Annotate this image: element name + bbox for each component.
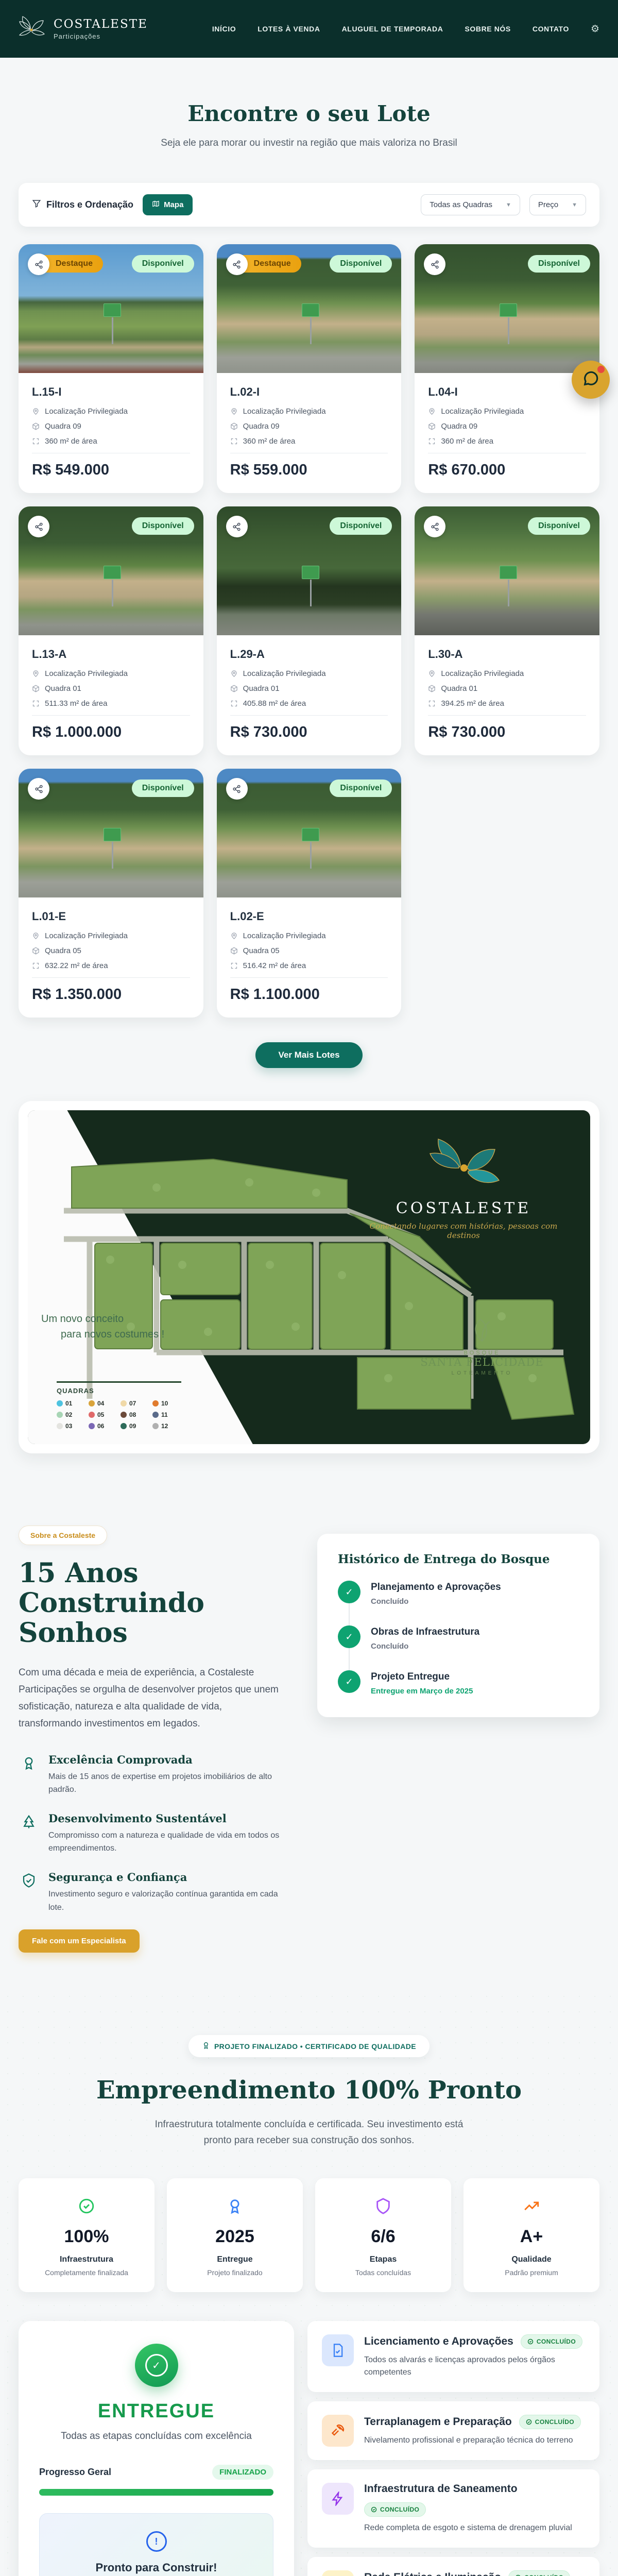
- masterplan-card: COSTALESTE Conectando lugares com histór…: [19, 1101, 599, 1453]
- lot-quadra: Quadra 09: [428, 422, 586, 431]
- legend-dot: [121, 1400, 127, 1406]
- lightning-icon: [322, 2483, 354, 2515]
- ready-subtitle: Infraestrutura totalmente concluída e ce…: [144, 2117, 474, 2148]
- legend-item: 03: [57, 1422, 85, 1430]
- progress-status-badge: FINALIZADO: [212, 2465, 273, 2480]
- filters-label: Filtros e Ordenação: [46, 199, 133, 210]
- legend-title: QUADRAS: [57, 1381, 181, 1395]
- legend-dot: [152, 1423, 159, 1429]
- legend-dot: [152, 1412, 159, 1418]
- status-badge: Disponível: [330, 517, 392, 535]
- lot-sign: [500, 566, 517, 579]
- brand-name: COSTALESTE: [54, 18, 148, 31]
- feature-item: Desenvolvimento Sustentável Compromisso …: [19, 1812, 286, 1855]
- ready-title: Empreendimento 100% Pronto: [19, 2076, 599, 2105]
- status-badge: Disponível: [528, 255, 590, 273]
- progress-bar: [39, 2489, 273, 2496]
- tree-icon: [19, 1812, 39, 1855]
- lot-card[interactable]: Disponível L.29-A Localização Privilegia…: [217, 506, 402, 755]
- lot-area: 511.33 m² de área: [32, 699, 190, 708]
- ver-mais-lotes-button[interactable]: Ver Mais Lotes: [255, 1042, 362, 1068]
- filter-bar: Filtros e Ordenação Mapa Todas as Quadra…: [19, 183, 599, 227]
- legend-dot: [121, 1412, 127, 1418]
- notification-dot: [596, 365, 606, 374]
- checklist-item: Rede Elétrica e Iluminação CONCLUÍDO Dis…: [307, 2557, 599, 2576]
- masterplan-tagline: Um novo conceito para novos costumes !: [41, 1311, 165, 1342]
- concluido-badge: CONCLUÍDO: [519, 2415, 581, 2429]
- lot-title: L.02-I: [230, 385, 388, 399]
- share-button[interactable]: [28, 778, 49, 800]
- nav-lotes-a-venda[interactable]: LOTES À VENDA: [257, 25, 320, 33]
- page-subtitle: Seja ele para morar ou investir na regiã…: [19, 138, 599, 149]
- ready-callout: ! Pronto para Construir! Sem espera, sem…: [39, 2513, 273, 2576]
- lot-photo: Disponível: [415, 244, 599, 373]
- lot-sign: [500, 303, 517, 317]
- nav-sobre-nos[interactable]: SOBRE NÓS: [465, 25, 510, 33]
- history-item: ✓ Obras de Infraestrutura Concluído: [338, 1625, 579, 1670]
- lot-area: 394.25 m² de área: [428, 699, 586, 708]
- about-title: 15 Anos Construindo Sonhos: [19, 1558, 235, 1649]
- lot-price: R$ 1.100.000: [230, 986, 388, 1003]
- info-icon: !: [146, 2531, 167, 2552]
- divider: [230, 977, 388, 978]
- hammer-icon: [322, 2415, 354, 2447]
- lot-photo: Disponível: [217, 769, 402, 897]
- ready-section: PROJETO FINALIZADO • CERTIFICADO DE QUAL…: [0, 1989, 618, 2576]
- share-button[interactable]: [226, 778, 248, 800]
- divider: [32, 453, 190, 453]
- status-badge: Disponível: [330, 779, 392, 797]
- divider: [428, 715, 586, 716]
- filters-label-group: Filtros e Ordenação: [32, 199, 133, 211]
- history-card: Histórico de Entrega do Bosque ✓ Planeja…: [317, 1534, 599, 1717]
- lot-title: L.13-A: [32, 648, 190, 661]
- legend-dot: [57, 1400, 63, 1406]
- lot-title: L.02-E: [230, 910, 388, 923]
- callout-title: Pronto para Construir!: [54, 2561, 259, 2574]
- award-icon: [19, 1753, 39, 1797]
- checklist-item: Infraestrutura de Saneamento CONCLUÍDO R…: [307, 2469, 599, 2548]
- stat-card: 2025 Entregue Projeto finalizado: [167, 2178, 303, 2292]
- lot-price: R$ 730.000: [230, 724, 388, 741]
- lot-quadra: Quadra 05: [32, 946, 190, 955]
- lot-location: Localização Privilegiada: [428, 669, 586, 678]
- checklist: Licenciamento e Aprovações CONCLUÍDO Tod…: [307, 2321, 599, 2576]
- legend-item: 08: [121, 1411, 149, 1418]
- check-circle-icon: ✓: [338, 1670, 360, 1693]
- lot-card[interactable]: Destaque Disponível L.15-I Localização P…: [19, 244, 203, 493]
- share-button[interactable]: [424, 516, 445, 537]
- lot-sign: [302, 566, 319, 579]
- lot-location: Localização Privilegiada: [230, 931, 388, 940]
- lot-location: Localização Privilegiada: [32, 931, 190, 940]
- feature-item: Segurança e Confiança Investimento segur…: [19, 1871, 286, 1914]
- fale-especialista-button[interactable]: Fale com um Especialista: [19, 1929, 140, 1953]
- document-check-icon: [322, 2334, 354, 2366]
- status-badge: Disponível: [132, 779, 194, 797]
- lot-card[interactable]: Disponível L.13-A Localização Privilegia…: [19, 506, 203, 755]
- lot-price: R$ 730.000: [428, 724, 586, 741]
- bosque-logo: BOSQUE SANTA FELICIDADE LOTEAMENTO: [405, 1316, 559, 1376]
- legend-item: 12: [152, 1422, 181, 1430]
- masterplan-brand: COSTALESTE Conectando lugares com histór…: [360, 1135, 566, 1240]
- divider: [428, 453, 586, 453]
- map-button[interactable]: Mapa: [143, 194, 193, 215]
- lot-photo: Destaque Disponível: [19, 244, 203, 373]
- chevron-down-icon: ▼: [572, 202, 577, 208]
- lightbulb-icon: [322, 2570, 354, 2576]
- quadras-legend: QUADRAS 01 04 07 10 02 05 08 11 03 06 09…: [57, 1381, 181, 1430]
- settings-gear-icon[interactable]: ⚙: [591, 23, 599, 35]
- stats-row: 100% Infraestrutura Completamente finali…: [19, 2178, 599, 2292]
- lot-card[interactable]: Destaque Disponível L.02-I Localização P…: [217, 244, 402, 493]
- lot-card[interactable]: Disponível L.02-E Localização Privilegia…: [217, 769, 402, 1018]
- legend-item: 09: [121, 1422, 149, 1430]
- bosque-name: SANTA FELICIDADE: [405, 1356, 559, 1368]
- shield-check-icon: [19, 1871, 39, 1914]
- history-item: ✓ Planejamento e Aprovações Concluído: [338, 1581, 579, 1625]
- legend-item: 05: [89, 1411, 117, 1418]
- divider: [230, 715, 388, 716]
- hero-section: Encontre o seu Lote Seja ele para morar …: [19, 58, 599, 154]
- lot-area: 632.22 m² de área: [32, 961, 190, 970]
- checklist-item: Terraplanagem e Preparação CONCLUÍDO Niv…: [307, 2401, 599, 2460]
- status-badge: Disponível: [528, 517, 590, 535]
- stat-card: 100% Infraestrutura Completamente finali…: [19, 2178, 154, 2292]
- ready-badge: PROJETO FINALIZADO • CERTIFICADO DE QUAL…: [188, 2035, 430, 2057]
- lot-card[interactable]: Disponível L.04-I Localização Privilegia…: [415, 244, 599, 493]
- legend-dot: [89, 1423, 95, 1429]
- nav-inicio[interactable]: INÍCIO: [212, 25, 236, 33]
- legend-dot: [152, 1400, 159, 1406]
- lot-photo: Disponível: [415, 506, 599, 635]
- legend-item: 02: [57, 1411, 85, 1418]
- lot-price: R$ 559.000: [230, 462, 388, 479]
- page-title: Encontre o seu Lote: [19, 101, 599, 126]
- medal-icon: [177, 2196, 293, 2216]
- lot-price: R$ 670.000: [428, 462, 586, 479]
- concluido-badge: CONCLUÍDO: [508, 2570, 570, 2576]
- lot-quadra: Quadra 05: [230, 946, 388, 955]
- quadras-select[interactable]: Todas as Quadras▼: [421, 194, 520, 215]
- legend-dot: [89, 1400, 95, 1406]
- legend-item: 06: [89, 1422, 117, 1430]
- lot-price: R$ 1.000.000: [32, 724, 190, 741]
- brand-logo[interactable]: COSTALESTE Participações: [19, 15, 148, 43]
- site-header: COSTALESTE Participações INÍCIO LOTES À …: [0, 0, 618, 58]
- lot-area: 360 m² de área: [32, 437, 190, 446]
- lot-quadra: Quadra 09: [32, 422, 190, 431]
- feature-item: Excelência Comprovada Mais de 15 anos de…: [19, 1753, 286, 1797]
- lot-sign: [104, 828, 121, 841]
- bosque-top: BOSQUE: [405, 1350, 559, 1356]
- share-button[interactable]: [226, 516, 248, 537]
- divider: [32, 977, 190, 978]
- lot-photo: Disponível: [19, 769, 203, 897]
- masterplan-brand-tagline: Conectando lugares com histórias, pessoa…: [360, 1222, 566, 1240]
- lot-sign: [104, 566, 121, 579]
- lot-price: R$ 1.350.000: [32, 986, 190, 1003]
- about-paragraph: Com uma década e meia de experiência, a …: [19, 1664, 286, 1733]
- bosque-sub: LOTEAMENTO: [405, 1370, 559, 1376]
- legend-dot: [89, 1412, 95, 1418]
- status-badge: Disponível: [132, 255, 194, 273]
- lot-location: Localização Privilegiada: [32, 669, 190, 678]
- progress-label: Progresso Geral: [39, 2467, 111, 2478]
- nav-aluguel-de-temporada[interactable]: ALUGUEL DE TEMPORADA: [342, 25, 443, 33]
- about-section: Sobre a Costaleste 15 Anos Construindo S…: [19, 1495, 599, 1989]
- history-title: Histórico de Entrega do Bosque: [338, 1552, 579, 1566]
- legend-dot: [121, 1423, 127, 1429]
- lot-sign: [302, 828, 319, 841]
- price-select[interactable]: Preço▼: [529, 194, 586, 215]
- legend-dot: [57, 1412, 63, 1418]
- share-button[interactable]: [226, 253, 248, 275]
- brand-tagline: Participações: [54, 32, 148, 40]
- lot-card[interactable]: Disponível L.30-A Localização Privilegia…: [415, 506, 599, 755]
- legend-item: 04: [89, 1400, 117, 1407]
- concluido-badge: CONCLUÍDO: [364, 2502, 426, 2517]
- chat-fab-button[interactable]: [572, 361, 610, 399]
- delivered-subtitle: Todas as etapas concluídas com excelênci…: [39, 2431, 273, 2442]
- lot-title: L.15-I: [32, 385, 190, 399]
- check-circle-icon: [29, 2196, 144, 2216]
- lot-area: 360 m² de área: [428, 437, 586, 446]
- lot-sign: [302, 303, 319, 317]
- lot-price: R$ 549.000: [32, 462, 190, 479]
- check-circle-icon: ✓: [338, 1625, 360, 1648]
- checklist-item: Licenciamento e Aprovações CONCLUÍDO Tod…: [307, 2321, 599, 2392]
- lot-area: 360 m² de área: [230, 437, 388, 446]
- delivered-title: ENTREGUE: [39, 2400, 273, 2422]
- lot-quadra: Quadra 01: [428, 684, 586, 693]
- lot-sign: [104, 303, 121, 317]
- masterplan-brand-name: COSTALESTE: [360, 1199, 566, 1217]
- chevron-down-icon: ▼: [506, 202, 511, 208]
- status-badge: Disponível: [330, 255, 392, 273]
- delivered-check-icon: ✓: [135, 2344, 178, 2387]
- lot-card[interactable]: Disponível L.01-E Localização Privilegia…: [19, 769, 203, 1018]
- nav-contato[interactable]: CONTATO: [533, 25, 569, 33]
- flower-logo-icon: [19, 15, 46, 43]
- lot-photo: Disponível: [19, 506, 203, 635]
- masterplan-flower-icon: [420, 1185, 507, 1194]
- funnel-icon: [32, 199, 41, 211]
- lots-grid: Destaque Disponível L.15-I Localização P…: [19, 244, 599, 1018]
- trending-up-icon: [474, 2196, 589, 2216]
- divider: [230, 453, 388, 453]
- stat-card: A+ Qualidade Padrão premium: [463, 2178, 599, 2292]
- about-badge: Sobre a Costaleste: [19, 1526, 107, 1545]
- masterplan-panel: COSTALESTE Conectando lugares com histór…: [28, 1110, 590, 1444]
- lot-quadra: Quadra 09: [230, 422, 388, 431]
- medal-icon: [202, 2041, 210, 2051]
- divider: [32, 715, 190, 716]
- lot-quadra: Quadra 01: [32, 684, 190, 693]
- lot-area: 405.88 m² de área: [230, 699, 388, 708]
- main-nav: INÍCIO LOTES À VENDA ALUGUEL DE TEMPORAD…: [212, 23, 599, 35]
- shield-icon: [325, 2196, 441, 2216]
- share-button[interactable]: [28, 253, 49, 275]
- concluido-badge: CONCLUÍDO: [521, 2334, 582, 2349]
- status-badge: Disponível: [132, 517, 194, 535]
- lot-location: Localização Privilegiada: [32, 407, 190, 416]
- lot-location: Localização Privilegiada: [428, 407, 586, 416]
- legend-item: 01: [57, 1400, 85, 1407]
- legend-item: 11: [152, 1411, 181, 1418]
- lot-location: Localização Privilegiada: [230, 407, 388, 416]
- delivered-card: ✓ ENTREGUE Todas as etapas concluídas co…: [19, 2321, 294, 2576]
- lot-quadra: Quadra 01: [230, 684, 388, 693]
- lot-title: L.01-E: [32, 910, 190, 923]
- map-icon: [152, 200, 160, 210]
- history-item: ✓ Projeto Entregue Entregue em Março de …: [338, 1670, 579, 1699]
- check-circle-icon: ✓: [338, 1581, 360, 1603]
- legend-item: 07: [121, 1400, 149, 1407]
- lot-photo: Disponível: [217, 506, 402, 635]
- lot-location: Localização Privilegiada: [230, 669, 388, 678]
- chat-bubble-icon: [582, 370, 599, 390]
- share-button[interactable]: [424, 253, 445, 275]
- lot-area: 516.42 m² de área: [230, 961, 388, 970]
- share-button[interactable]: [28, 516, 49, 537]
- more-lots-wrap: Ver Mais Lotes: [0, 1042, 618, 1068]
- legend-item: 10: [152, 1400, 181, 1407]
- stat-card: 6/6 Etapas Todas concluídas: [315, 2178, 451, 2292]
- lot-title: L.04-I: [428, 385, 586, 399]
- legend-dot: [57, 1423, 63, 1429]
- lot-photo: Destaque Disponível: [217, 244, 402, 373]
- lot-title: L.29-A: [230, 648, 388, 661]
- lot-title: L.30-A: [428, 648, 586, 661]
